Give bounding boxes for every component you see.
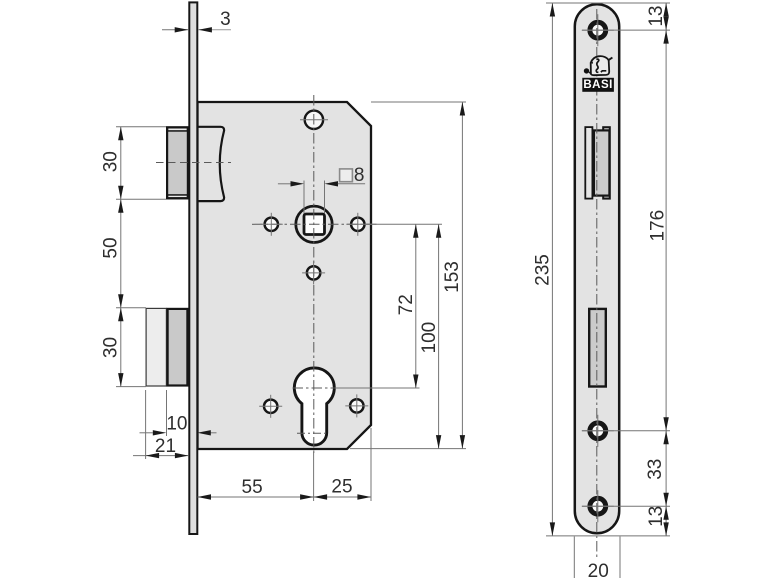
- svg-text:13: 13: [646, 6, 667, 27]
- svg-text:20: 20: [588, 561, 609, 578]
- svg-text:21: 21: [155, 436, 176, 457]
- svg-text:33: 33: [645, 459, 666, 480]
- svg-text:25: 25: [331, 477, 352, 498]
- svg-text:13: 13: [646, 506, 667, 527]
- svg-text:176: 176: [648, 210, 669, 242]
- svg-text:30: 30: [101, 337, 122, 358]
- svg-text:10: 10: [166, 414, 187, 435]
- svg-text:8: 8: [354, 165, 365, 186]
- svg-text:50: 50: [100, 237, 121, 258]
- svg-text:30: 30: [101, 151, 122, 172]
- svg-text:55: 55: [242, 477, 263, 498]
- svg-text:100: 100: [419, 322, 440, 354]
- svg-text:235: 235: [533, 254, 554, 286]
- svg-text:3: 3: [220, 9, 231, 30]
- svg-text:153: 153: [442, 261, 463, 293]
- svg-text:72: 72: [396, 294, 417, 315]
- svg-text:BASI: BASI: [583, 79, 612, 91]
